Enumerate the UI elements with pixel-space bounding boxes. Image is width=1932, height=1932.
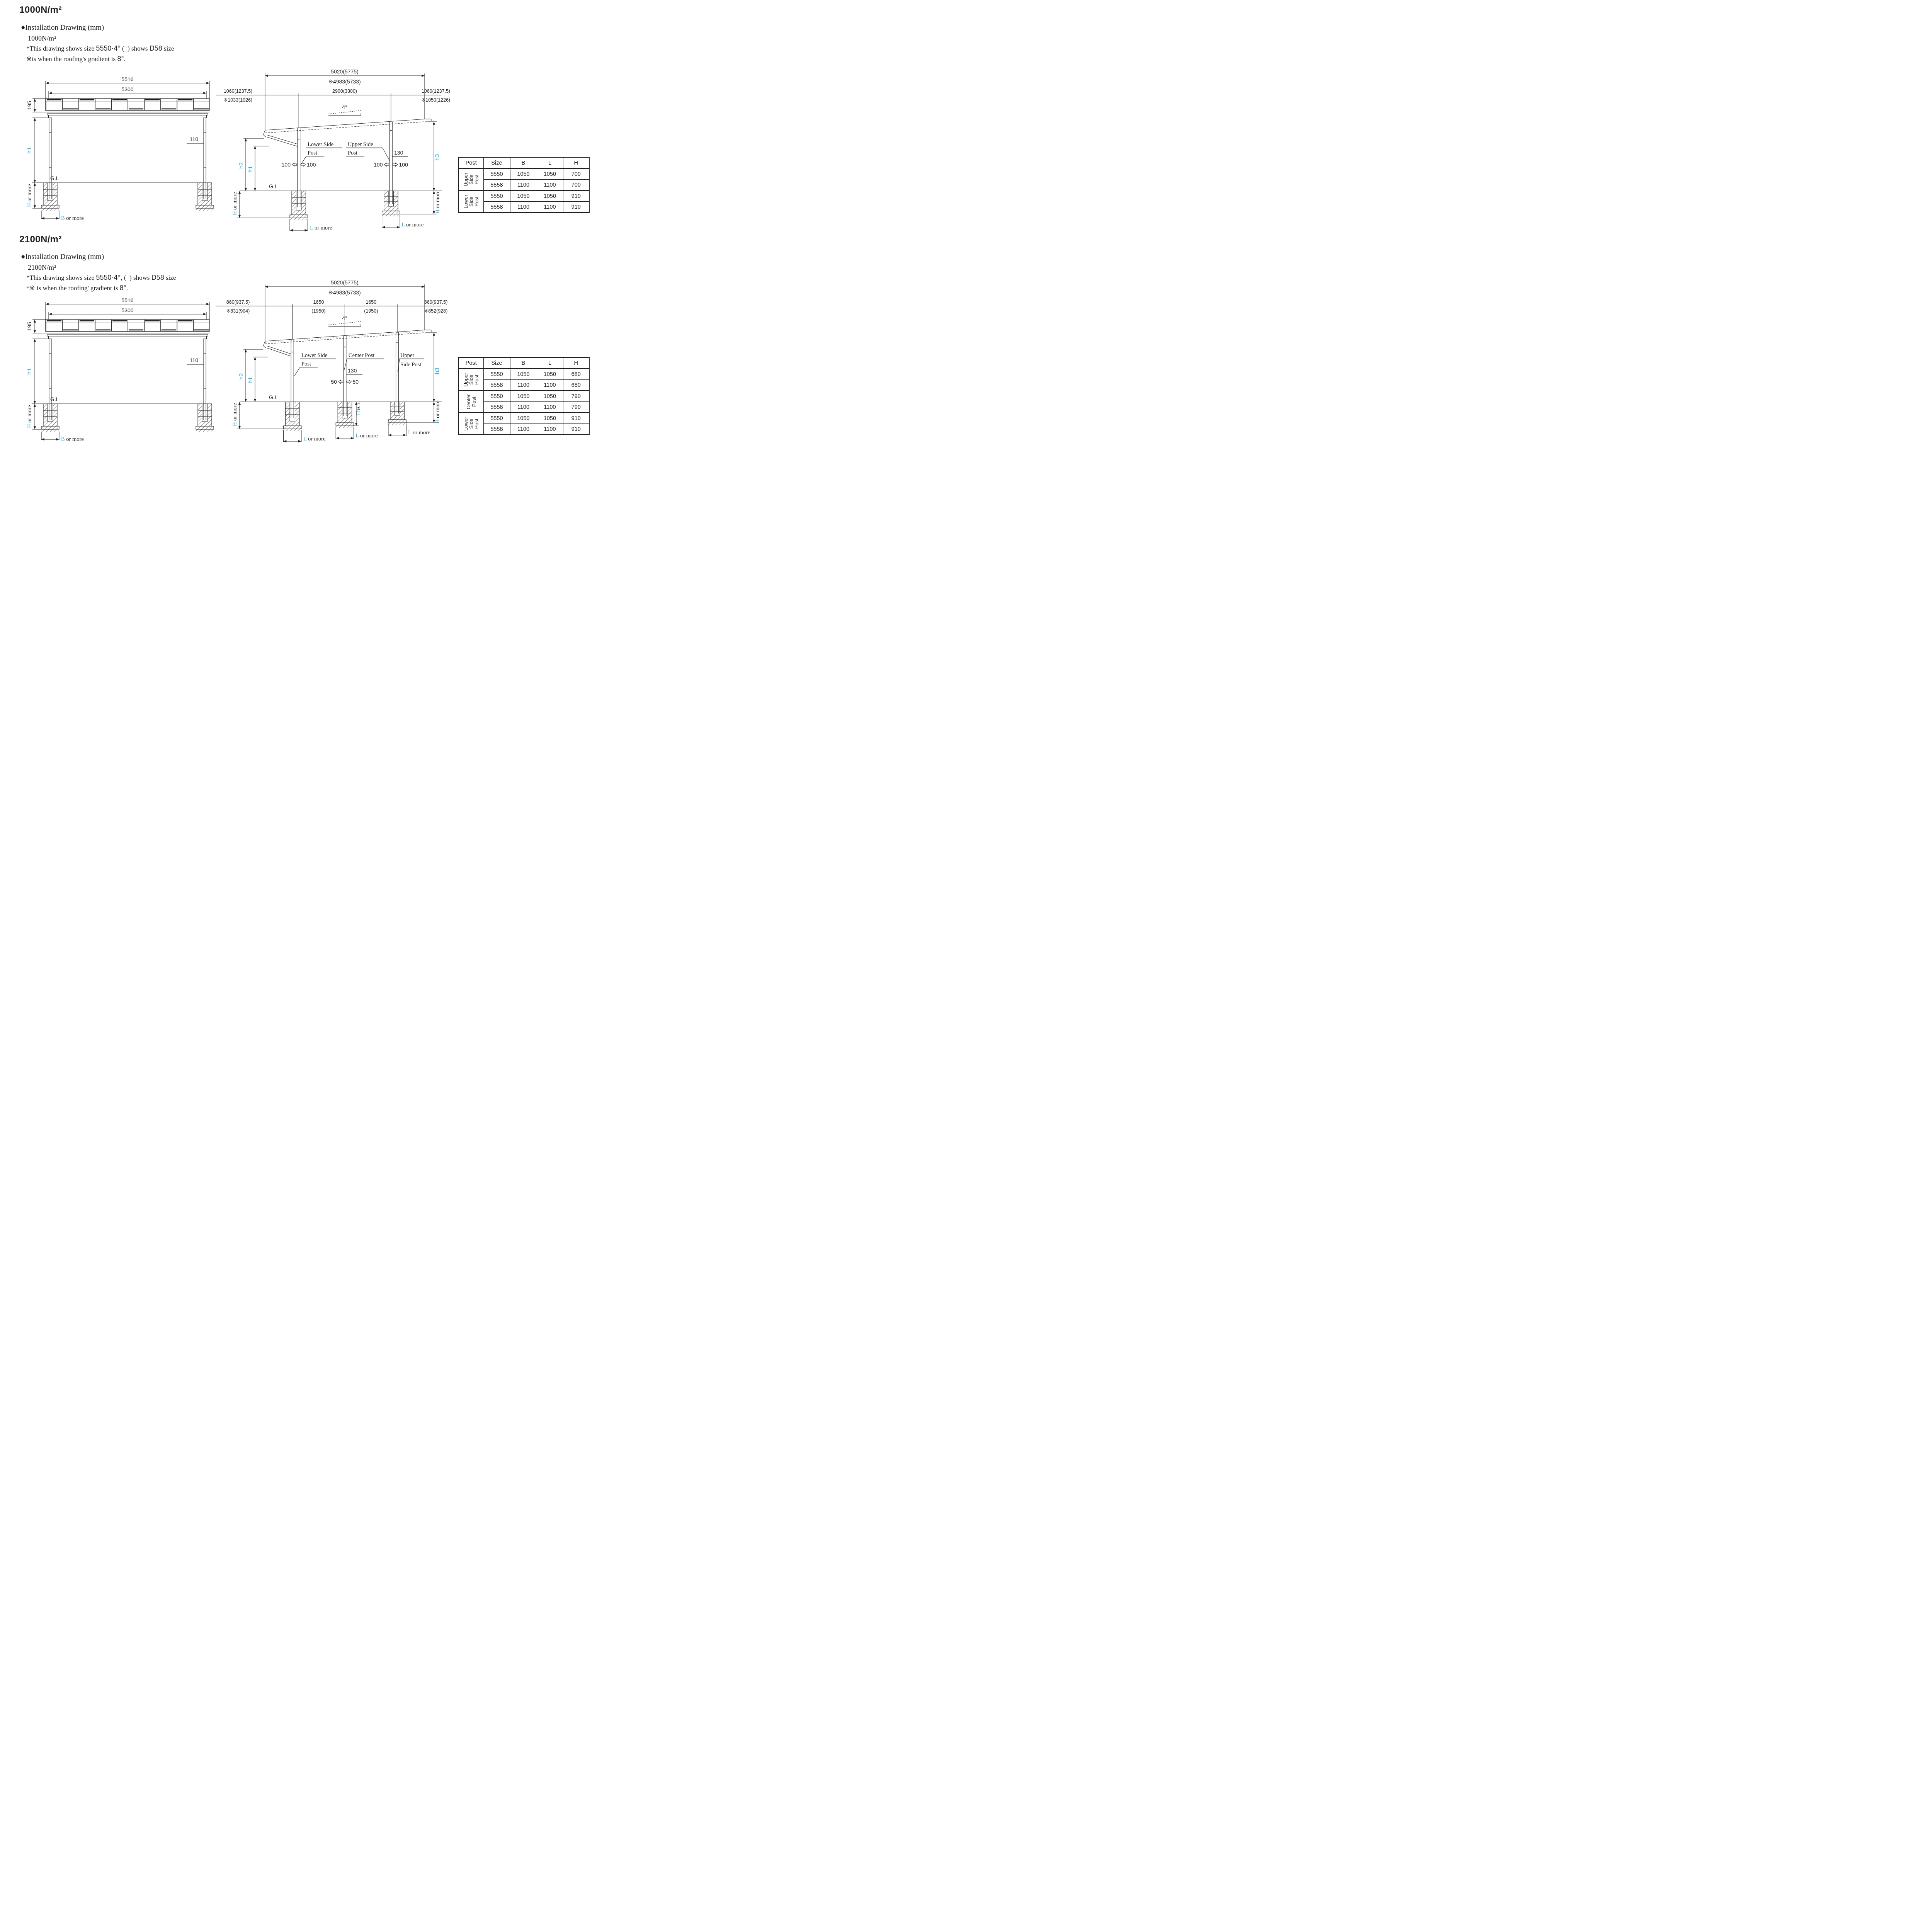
note-text: size — [164, 274, 176, 281]
foundation-center — [336, 402, 354, 428]
post-width-dim: 110 — [187, 136, 204, 143]
note-size: D58 — [150, 44, 162, 52]
h-letter: H — [27, 424, 33, 428]
or-more-text: or more — [27, 405, 33, 424]
table-row: Lower Side Post 5550 1050 1050 910 — [459, 413, 589, 424]
note-text: size — [162, 45, 174, 52]
installation-drawing-heading: ●Installation Drawing (mm) — [21, 24, 104, 32]
table-cell: 790 — [563, 402, 589, 413]
post-labels: Lower Side Post Upper Side Post 130 — [301, 141, 408, 165]
post-group-label: Center Post — [466, 394, 476, 409]
dim-h2-label: h2 — [238, 373, 245, 380]
h-letter: H — [232, 211, 238, 215]
b-letter: B — [61, 436, 65, 442]
col-header-post: Post — [459, 157, 483, 168]
dim-h1-label: h1 — [26, 368, 33, 375]
or-more-text: or more — [313, 225, 332, 231]
upper-side-post-label-2: Side Post — [400, 362, 421, 368]
table-cell: 5558 — [483, 202, 510, 213]
dim-b-or-more-label: B or more — [61, 436, 84, 442]
table-cell: 1050 — [537, 168, 563, 180]
h-or-more-left: H or more — [232, 192, 238, 215]
dim-right: 1060(1237.5) — [422, 88, 450, 94]
table-cell: 5550 — [483, 168, 510, 180]
offset-100: 100 — [307, 162, 316, 168]
foundation-lower — [290, 191, 308, 220]
center-post-label: Center Post — [349, 352, 374, 359]
section-title-1000n: 1000N/m² — [19, 5, 62, 15]
col-header-size: Size — [483, 157, 510, 168]
note-size: 5550·4° — [96, 44, 120, 52]
note-angle: 8° — [117, 55, 124, 63]
front-view-1000n: 5516 5300 195 h1 H o — [18, 75, 215, 221]
table-cell: 1100 — [537, 424, 563, 435]
foundation-left — [41, 183, 59, 211]
h-or-more-left: H or more — [232, 403, 238, 426]
h-letter: H — [435, 419, 441, 423]
post-labels: Lower Side Post Center Post Upper Side P… — [294, 352, 424, 376]
table-cell: 910 — [563, 413, 589, 424]
table-cell: 1050 — [537, 391, 563, 402]
l-or-more-dims: L or more L or more — [290, 215, 423, 231]
foundation-right — [196, 404, 214, 432]
center-post — [344, 336, 346, 402]
h-letter: H — [355, 411, 362, 415]
dim-h2-label: h2 — [238, 162, 245, 169]
col-header-size: Size — [483, 357, 510, 369]
table-cell: 700 — [563, 168, 589, 180]
dim-total-alt: ※4983(5733) — [328, 78, 361, 85]
note-text: ( ) shows — [122, 274, 151, 281]
ground: G.L — [240, 183, 442, 191]
ground: G.L — [32, 396, 211, 404]
post-group-label: Upper Side Post — [463, 373, 479, 386]
roof-panel — [264, 119, 432, 146]
post-size-table-2100n: Post Size B L H Upper Side Post 5550 105… — [458, 357, 590, 435]
note-line-2: ※is when the roofing's gradient is 8°. — [26, 55, 126, 63]
bolt-dots — [396, 342, 397, 343]
table-cell: 1100 — [510, 380, 537, 391]
dim-total-alt: ※4983(5733) — [328, 289, 361, 296]
col-header-b: B — [510, 357, 537, 369]
foundation-right — [196, 183, 214, 211]
l-or-more-lower: L or more — [310, 225, 332, 231]
h-or-more-right: H or more — [435, 190, 441, 214]
dim-mid2: 1650 — [366, 299, 376, 305]
or-more-text: or more — [411, 430, 430, 436]
note-line-1: *This drawing shows size 5550·4° ( ) sho… — [26, 44, 174, 53]
dim-130: 130 — [348, 367, 357, 374]
dim-h3-label: h3 — [434, 368, 440, 374]
lower-side-post-label-2: Post — [301, 361, 311, 367]
l-letter: L — [310, 225, 313, 231]
dim-130: 130 — [394, 150, 403, 156]
l-or-more-center: L or more — [355, 433, 378, 439]
b-dimension: B or more — [41, 432, 84, 442]
dim-right-alt: ※1050(1226) — [422, 97, 450, 103]
foundation-upper — [382, 191, 400, 216]
offset-50: 50 — [331, 379, 337, 385]
table-cell: 1100 — [537, 402, 563, 413]
table-cell: 910 — [563, 202, 589, 213]
bolt-dots — [298, 139, 299, 140]
note-size: 5550·4°, — [96, 274, 122, 281]
upper-side-post-label-2: Post — [348, 150, 357, 156]
table-cell: 1100 — [537, 380, 563, 391]
dim-post-width: 110 — [190, 136, 199, 142]
ground-level-label: G.L — [269, 394, 278, 400]
lower-side-post-label: Lower Side — [301, 352, 327, 359]
upper-side-post — [396, 332, 399, 402]
post-offset-dims: 50 50 — [331, 379, 359, 385]
col-header-l: L — [537, 357, 563, 369]
dim-right: 860(937.5) — [424, 299, 447, 305]
table-cell: 680 — [563, 380, 589, 391]
table-cell: 1100 — [537, 202, 563, 213]
bolt-dots — [291, 352, 292, 352]
table-header-row: Post Size B L H — [459, 357, 589, 369]
dim-outer-width: 5516 — [121, 76, 133, 82]
post-group-label: Upper Side Post — [463, 173, 479, 186]
note-line-1: *This drawing shows size 5550·4°, ( ) sh… — [26, 274, 176, 282]
ground: G.L — [240, 394, 442, 402]
section-title-2100n: 2100N/m² — [19, 234, 62, 245]
offset-arrow-left-icon — [292, 163, 297, 167]
col-header-l: L — [537, 157, 563, 168]
table-cell: 5550 — [483, 190, 510, 202]
post-width-dim: 110 — [187, 357, 204, 364]
offset-100: 100 — [399, 162, 408, 168]
table-cell: 1100 — [537, 180, 563, 191]
table-cell: 1050 — [510, 413, 537, 424]
dim-roof-height: 195 — [26, 101, 32, 110]
roof-angle-label: 4° — [342, 104, 347, 110]
or-more-text: or more — [359, 433, 378, 439]
foundation-lower — [284, 402, 301, 431]
top-dimensions: 5516 5300 — [46, 297, 209, 320]
table-cell: 1050 — [510, 391, 537, 402]
dim-mid: 2900(3300) — [332, 88, 357, 94]
table-cell: 1050 — [537, 369, 563, 380]
load-label: 2100N/m² — [28, 264, 56, 272]
dim-left: 1060(1237.5) — [224, 88, 252, 94]
dim-b-or-more-label: B or more — [61, 215, 84, 221]
table-cell: 1100 — [510, 180, 537, 191]
table-cell: 680 — [563, 369, 589, 380]
col-header-post: Post — [459, 357, 483, 369]
upper-side-post-label: Upper — [400, 352, 414, 359]
table-cell: 5558 — [483, 424, 510, 435]
table-row: Upper Side Post 5550 1050 1050 680 — [459, 369, 589, 380]
l-letter: L — [408, 430, 411, 436]
dim-mid2-alt: (1950) — [364, 308, 378, 314]
b-dimension: B or more — [41, 211, 84, 221]
or-more-text: or more — [435, 400, 441, 419]
table-cell: 5558 — [483, 180, 510, 191]
or-more-text: or more — [405, 222, 423, 228]
table-cell: 1050 — [510, 168, 537, 180]
dim-left: 860(937.5) — [226, 299, 250, 305]
table-row: Lower Side Post 5550 1050 1050 910 — [459, 190, 589, 202]
load-label: 1000N/m² — [28, 34, 56, 43]
dim-h3-label: h3 — [434, 154, 440, 161]
table-cell: 5550 — [483, 391, 510, 402]
col-header-h: H — [563, 157, 589, 168]
table-cell: 1100 — [510, 202, 537, 213]
or-more-text: or more — [65, 436, 84, 442]
or-more-text: or more — [435, 190, 441, 209]
lower-side-post-label: Lower Side — [308, 141, 333, 148]
foundation-upper — [388, 402, 406, 425]
offset-50: 50 — [353, 379, 359, 385]
table-cell: 5550 — [483, 369, 510, 380]
offset-arrow-right-icon — [393, 163, 398, 167]
dim-h1-label: h1 — [247, 377, 254, 384]
l-or-more-upper: L or more — [401, 222, 423, 228]
side-view-1000n: 5020(5775) ※4983(5733) 1060(1237.5) 2900… — [213, 64, 452, 232]
catalog-page: { "page": {"background": "#ffffff", "ink… — [0, 0, 597, 443]
dim-h1-label: h1 — [247, 166, 254, 173]
dim-mid1-alt: (1950) — [311, 308, 325, 314]
l-letter: L — [401, 222, 405, 228]
l-letter: L — [355, 433, 359, 439]
h-letter: H — [27, 203, 33, 207]
leader-line — [383, 148, 390, 161]
or-more-text: or more — [232, 403, 238, 422]
b-letter: B — [61, 215, 65, 221]
table-cell: 910 — [563, 424, 589, 435]
side-view-2100n: 5020(5775) ※4983(5733) 860(937.5) 1650 1… — [213, 275, 452, 443]
or-more-text: or more — [27, 184, 33, 203]
note-text: . — [124, 55, 126, 63]
spec-table: Post Size B L H Upper Side Post 5550 105… — [458, 157, 590, 213]
table-cell: 5550 — [483, 413, 510, 424]
offset-arrow-left-icon — [338, 380, 343, 384]
roof-deck — [45, 320, 210, 333]
table-cell: 1100 — [510, 402, 537, 413]
dim-roof-height: 195 — [26, 322, 32, 331]
note-text: *※ is when the roofing' gradient is — [26, 284, 120, 292]
dim-mid1: 1650 — [313, 299, 324, 305]
table-cell: 700 — [563, 180, 589, 191]
front-view-2100n: 5516 5300 195 h1 H o — [18, 296, 215, 442]
ground: G.L — [32, 175, 211, 183]
h-letter: H — [435, 209, 441, 214]
roof-angle-label: 4° — [342, 315, 347, 321]
note-text: *This drawing shows size — [26, 45, 96, 52]
upper-side-post — [389, 122, 392, 191]
table-row: Center Post 5550 1050 1050 790 — [459, 391, 589, 402]
table-cell: 1050 — [537, 190, 563, 202]
or-more-text: or more — [65, 215, 84, 221]
note-text: ( ) shows — [121, 45, 150, 52]
offset-100: 100 — [374, 162, 383, 168]
table-cell: 5558 — [483, 402, 510, 413]
h-or-more-right: H or more — [435, 400, 441, 423]
note-text: . — [126, 284, 128, 292]
foundation-left — [41, 404, 59, 432]
table-header-row: Post Size B L H — [459, 157, 589, 168]
dim-h-or-more-label: H or more — [27, 405, 33, 428]
beam — [47, 335, 208, 339]
note-line-2: *※ is when the roofing' gradient is 8°. — [26, 284, 128, 292]
dim-inner-width: 5300 — [121, 307, 133, 313]
table-cell: 1050 — [537, 413, 563, 424]
offset-arrow-left-icon — [384, 163, 389, 167]
bolt-dots — [344, 347, 345, 347]
dim-left-alt: ※1033(1026) — [224, 97, 252, 103]
or-more-text: or more — [232, 192, 238, 211]
post-size-table-1000n: Post Size B L H Upper Side Post 5550 105… — [458, 157, 590, 213]
dim-h-or-more-label: H or more — [27, 184, 33, 207]
note-angle: 8° — [120, 284, 126, 292]
ground-level-label: G.L — [50, 175, 59, 181]
upper-side-post-label: Upper Side — [348, 141, 373, 148]
h-letter: H — [232, 422, 238, 426]
top-dimensions: 5516 5300 — [46, 76, 209, 99]
post-group-label: Lower Side Post — [463, 417, 479, 430]
leader-line — [294, 367, 300, 376]
beam — [47, 114, 208, 118]
bolt-dots — [390, 130, 391, 131]
eave-brace — [267, 135, 298, 144]
l-letter: L — [303, 436, 306, 442]
h-or-more-dims: H or more H or more — [232, 190, 441, 218]
eave-brace — [267, 346, 291, 354]
roof-deck — [45, 99, 210, 112]
dim-left-alt: ※831(904) — [226, 308, 250, 314]
table-row: Upper Side Post 5550 1050 1050 700 — [459, 168, 589, 180]
table-cell: 1050 — [510, 369, 537, 380]
l-or-more-dims: L or more L or more L or more — [284, 423, 430, 442]
table-cell: 910 — [563, 190, 589, 202]
posts — [49, 339, 206, 404]
spec-table: Post Size B L H Upper Side Post 5550 105… — [458, 357, 590, 435]
table-cell: 790 — [563, 391, 589, 402]
posts — [49, 118, 206, 183]
post-offset-dims: 100 100 100 100 — [282, 162, 408, 168]
dim-total: 5020(5775) — [331, 279, 359, 286]
table-cell: 1050 — [510, 190, 537, 202]
lower-side-post-label-2: Post — [308, 150, 317, 156]
note-text: ※is when the roofing's gradient is — [26, 55, 117, 63]
installation-drawing-heading: ●Installation Drawing (mm) — [21, 253, 104, 261]
col-header-b: B — [510, 157, 537, 168]
l-or-more-upper: L or more — [408, 430, 430, 436]
table-cell: 1100 — [510, 424, 537, 435]
l-or-more-lower: L or more — [303, 436, 325, 442]
lower-side-post — [298, 128, 300, 191]
dim-post-width: 110 — [190, 357, 199, 363]
offset-arrow-right-icon — [347, 380, 351, 384]
leader-line — [344, 359, 347, 371]
dim-h1-label: h1 — [26, 147, 33, 154]
note-size: D58 — [151, 274, 164, 281]
post-group-label: Lower Side Post — [463, 195, 479, 208]
col-header-h: H — [563, 357, 589, 369]
or-more-text: or more — [306, 436, 325, 442]
ground-level-label: G.L — [269, 183, 278, 189]
ground-level-label: G.L — [50, 396, 59, 402]
lower-side-post — [291, 339, 294, 402]
offset-100: 100 — [282, 162, 291, 168]
dim-inner-width: 5300 — [121, 86, 133, 92]
dim-outer-width: 5516 — [121, 297, 133, 303]
note-text: *This drawing shows size — [26, 274, 96, 281]
table-cell: 5558 — [483, 380, 510, 391]
slope-indicator: 4° — [328, 104, 361, 116]
dim-total: 5020(5775) — [331, 68, 359, 75]
dim-right-alt: ※852(928) — [424, 308, 448, 314]
kanji-ijou-icon — [357, 402, 360, 410]
